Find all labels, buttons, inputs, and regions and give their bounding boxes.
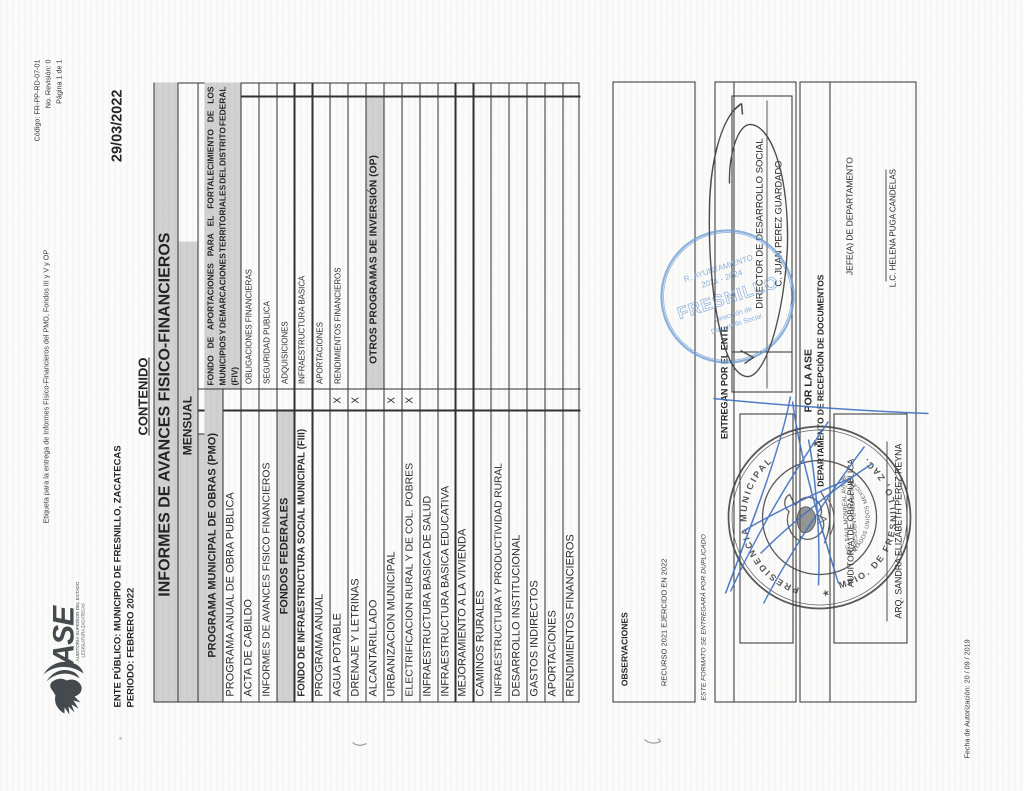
svg-text:AUDITORÍA SUPERIOR DEL ESTADO: AUDITORÍA SUPERIOR DEL ESTADO: [74, 581, 80, 661]
svg-text:★: ★: [820, 588, 831, 597]
svg-text:LEGISLATURA ZACATECAS: LEGISLATURA ZACATECAS: [80, 602, 85, 657]
